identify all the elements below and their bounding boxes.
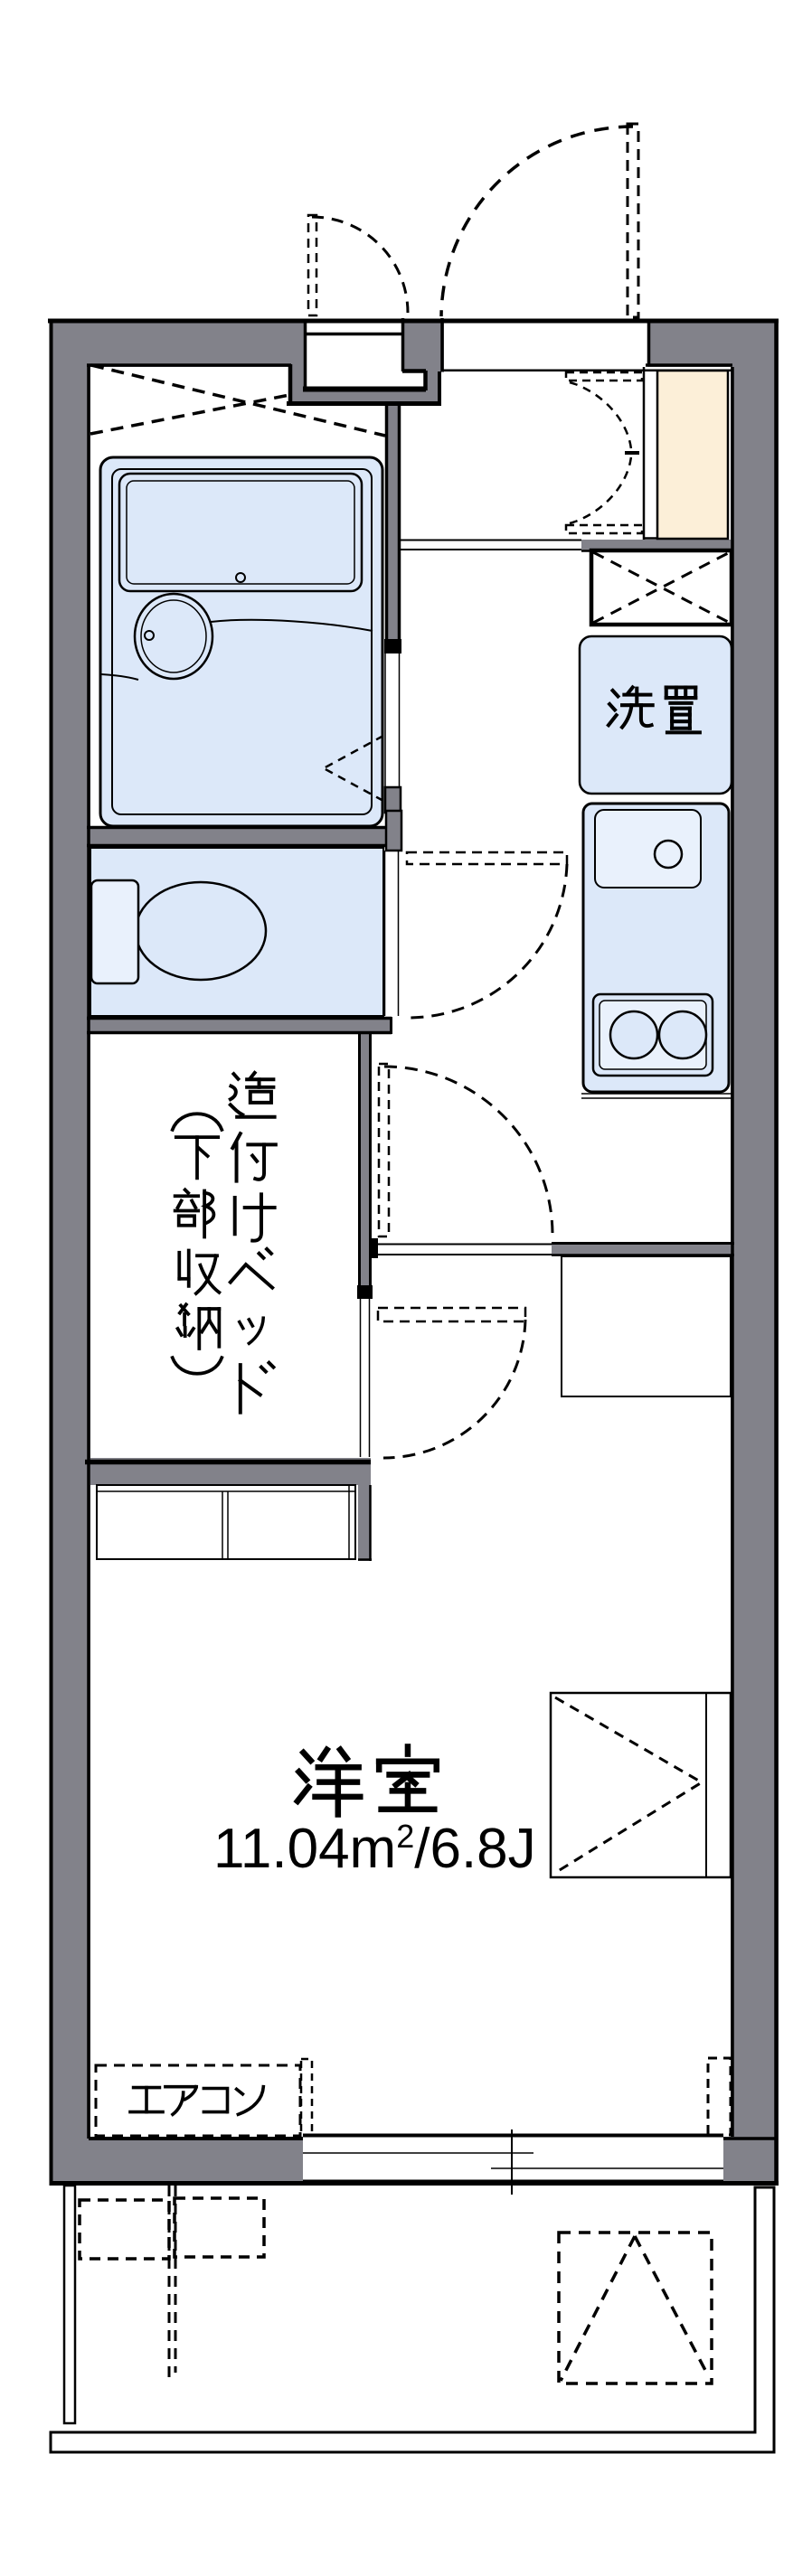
svg-text:11.04m2/6.8J: 11.04m2/6.8J <box>213 1818 536 1880</box>
